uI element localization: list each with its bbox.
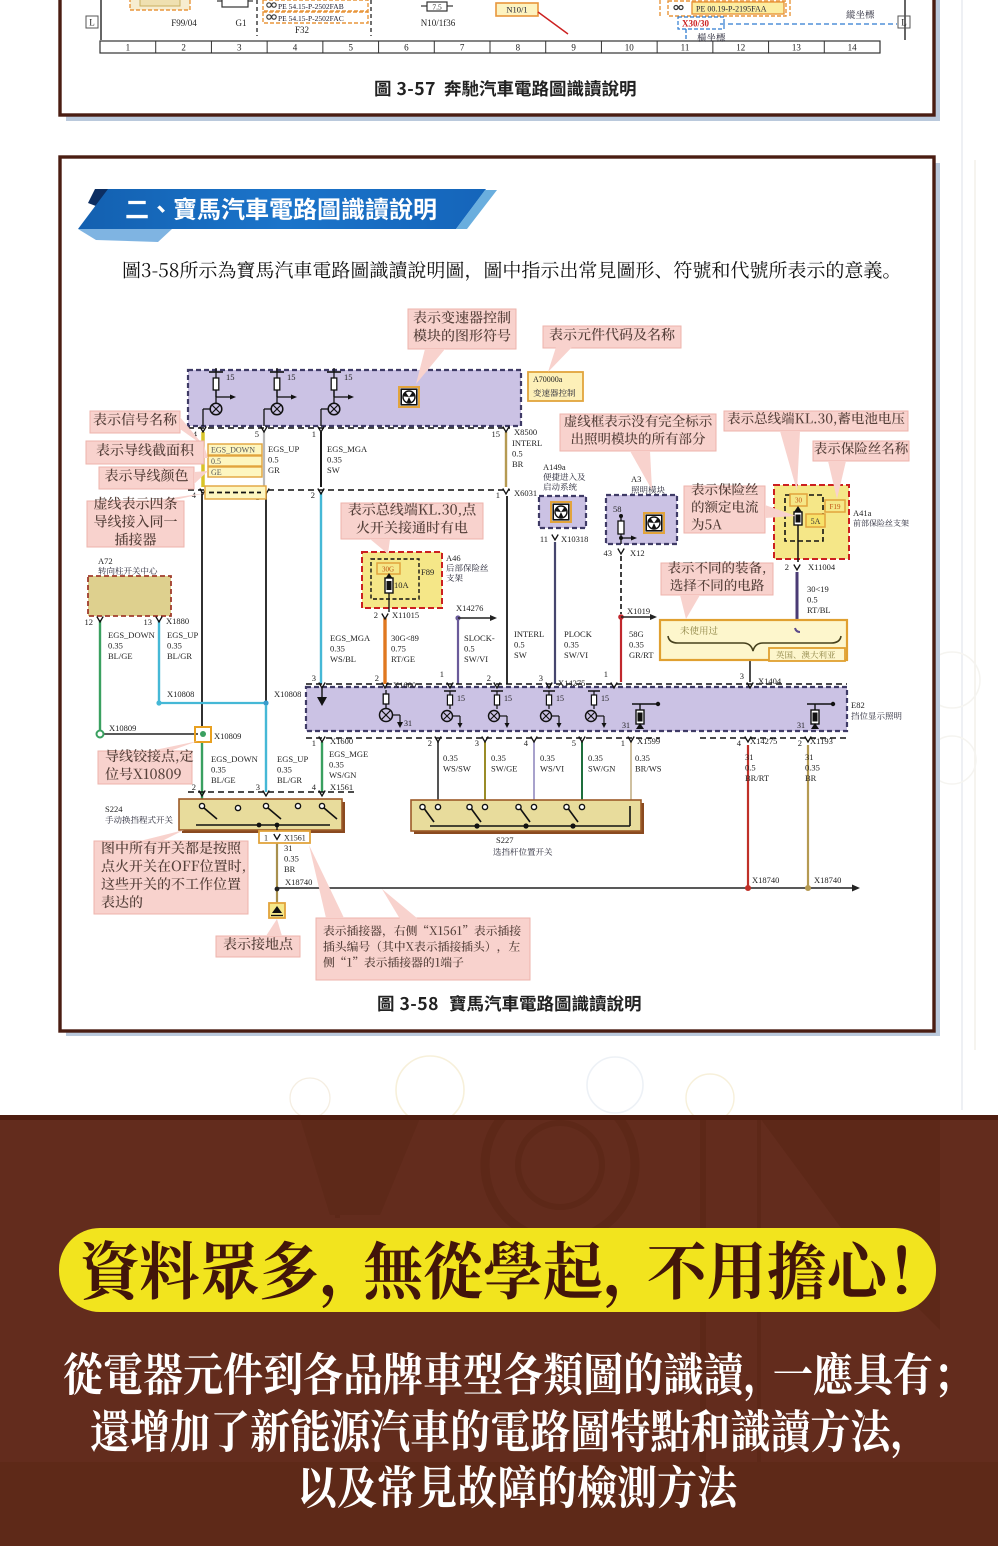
svg-text:0.35: 0.35: [629, 640, 644, 650]
svg-text:2: 2: [798, 738, 802, 748]
svg-text:0.75: 0.75: [391, 644, 406, 654]
svg-text:X1404: X1404: [758, 676, 782, 686]
svg-text:A149a: A149a: [543, 462, 566, 472]
svg-text:9: 9: [571, 43, 576, 53]
svg-text:15: 15: [287, 372, 296, 382]
svg-text:3: 3: [475, 738, 479, 748]
svg-text:L: L: [89, 18, 95, 28]
svg-text:X1019: X1019: [627, 606, 650, 616]
svg-text:0.35: 0.35: [491, 753, 506, 763]
svg-text:WS/BL: WS/BL: [330, 654, 356, 664]
svg-text:3: 3: [237, 43, 242, 53]
svg-text:G1: G1: [236, 18, 247, 28]
svg-text:GE: GE: [211, 468, 222, 477]
svg-text:X11015: X11015: [392, 610, 419, 620]
svg-text:12: 12: [85, 617, 94, 627]
svg-text:1: 1: [312, 429, 316, 439]
svg-text:X14275: X14275: [750, 736, 777, 746]
svg-text:2: 2: [428, 738, 432, 748]
svg-text:EGS_UP: EGS_UP: [268, 444, 299, 454]
svg-text:1: 1: [496, 490, 500, 500]
svg-text:2: 2: [374, 610, 378, 620]
svg-text:11: 11: [540, 534, 548, 544]
svg-text:EGS_MGA: EGS_MGA: [327, 444, 368, 454]
svg-text:0.5: 0.5: [464, 644, 475, 654]
svg-text:31: 31: [404, 719, 412, 728]
svg-text:5: 5: [348, 43, 353, 53]
svg-text:RT/BL: RT/BL: [807, 605, 831, 615]
svg-text:WS/GN: WS/GN: [329, 770, 356, 780]
svg-text:0.5: 0.5: [512, 449, 523, 459]
svg-text:11: 11: [681, 43, 690, 53]
svg-text:EGS_MGA: EGS_MGA: [330, 633, 371, 643]
svg-text:15: 15: [601, 694, 609, 703]
svg-text:EGS_DOWN: EGS_DOWN: [211, 754, 258, 764]
svg-text:7: 7: [460, 43, 465, 53]
svg-text:X18740: X18740: [814, 875, 841, 885]
svg-text:3: 3: [740, 671, 744, 681]
svg-text:EGS_DOWN: EGS_DOWN: [211, 446, 255, 455]
svg-text:31: 31: [745, 752, 754, 762]
svg-text:15: 15: [226, 372, 235, 382]
svg-text:0.35: 0.35: [635, 753, 650, 763]
svg-text:13: 13: [144, 617, 153, 627]
svg-text:15: 15: [457, 694, 465, 703]
svg-text:PE 54.15-P-2502FAC: PE 54.15-P-2502FAC: [278, 14, 344, 23]
svg-text:X14276: X14276: [456, 603, 483, 613]
svg-text:30G<89: 30G<89: [391, 633, 419, 643]
svg-text:RT/GE: RT/GE: [391, 654, 415, 664]
svg-text:X1561: X1561: [330, 782, 353, 792]
svg-text:F99/04: F99/04: [171, 18, 197, 28]
svg-text:A70000a: A70000a: [533, 375, 563, 384]
svg-text:A46: A46: [446, 553, 461, 563]
svg-text:A41a: A41a: [853, 508, 872, 518]
svg-text:15: 15: [556, 694, 564, 703]
svg-text:14: 14: [848, 43, 858, 53]
svg-text:EGS_DOWN: EGS_DOWN: [108, 630, 155, 640]
svg-text:E82: E82: [851, 700, 865, 710]
svg-text:0.35: 0.35: [108, 641, 123, 651]
svg-text:0.35: 0.35: [564, 640, 579, 650]
svg-text:F89: F89: [421, 567, 434, 577]
svg-text:3: 3: [539, 673, 543, 683]
svg-text:EGS_UP: EGS_UP: [167, 630, 198, 640]
svg-text:N10/1f36: N10/1f36: [421, 18, 456, 28]
svg-text:N10/1: N10/1: [506, 5, 527, 15]
svg-text:0.35: 0.35: [327, 455, 342, 465]
svg-text:1: 1: [604, 669, 608, 679]
svg-text:2: 2: [181, 43, 186, 53]
svg-text:5: 5: [255, 429, 259, 439]
svg-text:X18740: X18740: [285, 877, 312, 887]
svg-text:X1599: X1599: [637, 736, 660, 746]
svg-text:A3: A3: [631, 474, 641, 484]
svg-text:X10808: X10808: [274, 689, 301, 699]
svg-text:INTERL: INTERL: [512, 438, 542, 448]
svg-text:5A: 5A: [811, 517, 821, 526]
svg-text:BR: BR: [284, 864, 296, 874]
svg-text:GR: GR: [268, 465, 280, 475]
svg-text:BR/RT: BR/RT: [745, 773, 770, 783]
svg-text:BL/GR: BL/GR: [277, 775, 302, 785]
svg-text:WS/SW: WS/SW: [443, 764, 471, 774]
svg-text:BR/WS: BR/WS: [635, 764, 662, 774]
svg-text:X6031: X6031: [514, 488, 537, 498]
svg-text:0.5: 0.5: [514, 640, 525, 650]
svg-text:0.5: 0.5: [745, 763, 756, 773]
svg-text:SLOCK-: SLOCK-: [464, 633, 495, 643]
svg-text:WS/VI: WS/VI: [540, 764, 564, 774]
svg-text:0.35: 0.35: [277, 765, 292, 775]
svg-text:PE 54.15-P-2502FAB: PE 54.15-P-2502FAB: [278, 2, 344, 11]
svg-text:SW: SW: [514, 650, 527, 660]
svg-text:31: 31: [284, 843, 293, 853]
svg-text:F32: F32: [295, 25, 309, 35]
svg-text:X30/30: X30/30: [682, 19, 710, 29]
svg-text:0.35: 0.35: [167, 641, 182, 651]
svg-text:X14275: X14275: [558, 678, 585, 688]
svg-text:12: 12: [736, 43, 745, 53]
svg-text:SW/VI: SW/VI: [464, 654, 488, 664]
svg-text:10: 10: [625, 43, 635, 53]
svg-text:15: 15: [492, 429, 501, 439]
svg-text:0.5: 0.5: [268, 455, 279, 465]
svg-text:5: 5: [572, 738, 576, 748]
svg-text:0.35: 0.35: [540, 753, 555, 763]
svg-text:A72: A72: [98, 556, 113, 566]
svg-text:X10809: X10809: [109, 723, 136, 733]
svg-text:30<19: 30<19: [807, 584, 829, 594]
svg-text:31: 31: [805, 752, 814, 762]
svg-text:BL/GR: BL/GR: [167, 651, 192, 661]
svg-text:0.35: 0.35: [443, 753, 458, 763]
svg-text:3: 3: [312, 673, 316, 683]
svg-text:S227: S227: [496, 835, 513, 845]
svg-text:2: 2: [487, 673, 491, 683]
svg-text:15: 15: [504, 694, 512, 703]
svg-text:X1561: X1561: [284, 834, 306, 843]
svg-text:INTERL: INTERL: [514, 629, 544, 639]
svg-text:0.35: 0.35: [330, 644, 345, 654]
svg-text:43: 43: [604, 548, 613, 558]
svg-text:0.5: 0.5: [211, 457, 221, 466]
svg-text:X12: X12: [630, 548, 645, 558]
svg-text:GR/RT: GR/RT: [629, 650, 654, 660]
svg-text:PE 00.19-P-2195FAA: PE 00.19-P-2195FAA: [696, 5, 767, 14]
svg-text:X1600: X1600: [330, 736, 353, 746]
svg-text:L: L: [901, 18, 907, 28]
svg-text:0.35: 0.35: [329, 760, 344, 770]
svg-text:BL/GE: BL/GE: [211, 775, 236, 785]
svg-text:58: 58: [613, 504, 622, 514]
svg-text:X10318: X10318: [561, 534, 588, 544]
svg-text:10A: 10A: [394, 580, 410, 590]
svg-text:EGS_MGE: EGS_MGE: [329, 749, 368, 759]
svg-text:SW/GN: SW/GN: [588, 764, 615, 774]
svg-text:1: 1: [312, 738, 316, 748]
svg-text:31: 31: [797, 721, 805, 730]
svg-text:2: 2: [375, 673, 379, 683]
svg-text:X10809: X10809: [214, 731, 241, 741]
svg-text:EGS_UP: EGS_UP: [277, 754, 308, 764]
svg-text:S224: S224: [105, 804, 123, 814]
svg-text:0.5: 0.5: [807, 595, 818, 605]
svg-text:0.35: 0.35: [805, 763, 820, 773]
svg-text:BL/GE: BL/GE: [108, 651, 133, 661]
svg-text:1: 1: [440, 669, 444, 679]
svg-text:X18740: X18740: [752, 875, 779, 885]
svg-text:BR: BR: [512, 459, 524, 469]
svg-text:SW/VI: SW/VI: [564, 650, 588, 660]
svg-text:31: 31: [622, 721, 630, 730]
svg-text:F19: F19: [830, 503, 841, 511]
svg-text:2: 2: [785, 562, 789, 572]
svg-text:0.35: 0.35: [284, 854, 299, 864]
svg-text:8: 8: [516, 43, 521, 53]
svg-text:X8500: X8500: [514, 427, 537, 437]
svg-text:PLOCK: PLOCK: [564, 629, 593, 639]
svg-text:0.35: 0.35: [588, 753, 603, 763]
svg-text:30G: 30G: [382, 566, 394, 574]
svg-text:4: 4: [293, 43, 298, 53]
svg-text:SW/GE: SW/GE: [491, 764, 517, 774]
svg-text:6: 6: [404, 43, 409, 53]
svg-text:1: 1: [621, 738, 625, 748]
svg-text:3: 3: [256, 782, 260, 792]
svg-text:X1880: X1880: [166, 616, 189, 626]
svg-text:30: 30: [795, 497, 803, 505]
svg-text:0.35: 0.35: [211, 765, 226, 775]
svg-text:13: 13: [792, 43, 802, 53]
svg-text:58G: 58G: [629, 629, 644, 639]
svg-text:BR: BR: [805, 773, 817, 783]
svg-text:X10808: X10808: [167, 689, 194, 699]
svg-text:X1193: X1193: [810, 736, 833, 746]
svg-text:1: 1: [126, 43, 131, 53]
svg-text:X11004: X11004: [808, 562, 836, 572]
svg-text:SW: SW: [327, 465, 340, 475]
svg-text:2: 2: [311, 490, 315, 500]
svg-text:1: 1: [264, 834, 268, 843]
svg-text:15: 15: [344, 372, 353, 382]
svg-text:X1600: X1600: [393, 680, 416, 690]
svg-text:7.5: 7.5: [432, 3, 442, 12]
